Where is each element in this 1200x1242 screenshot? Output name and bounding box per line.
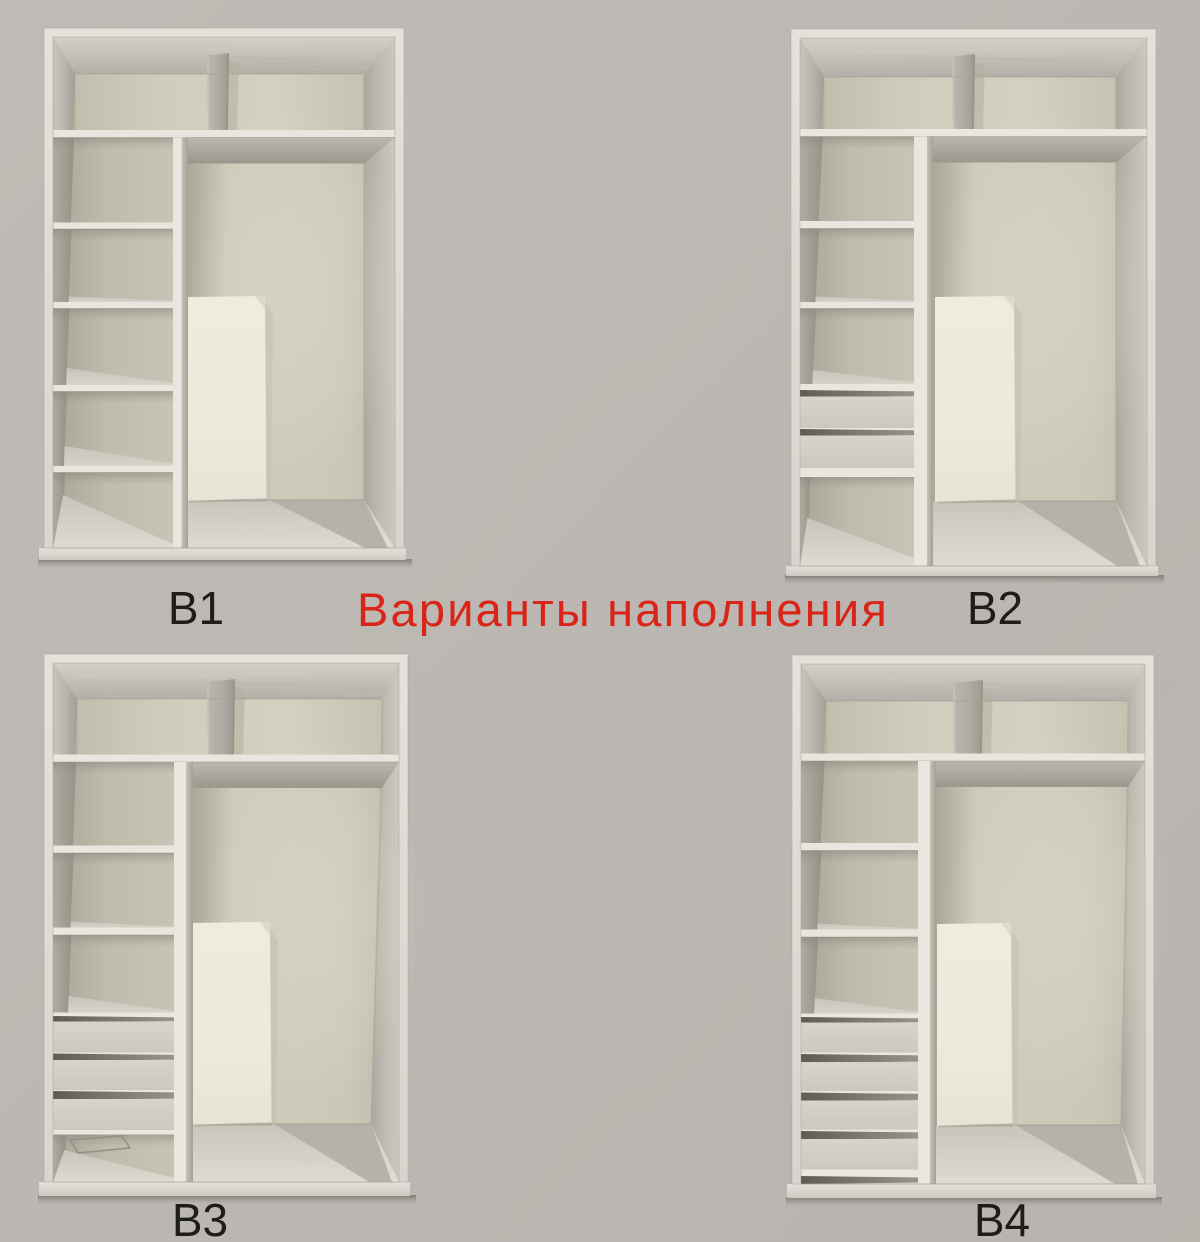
svg-text:B3: B3 bbox=[172, 1194, 228, 1242]
svg-text:B2: B2 bbox=[967, 582, 1023, 634]
svg-text:B4: B4 bbox=[974, 1194, 1030, 1242]
svg-text:Варианты наполнения: Варианты наполнения bbox=[357, 583, 889, 636]
svg-text:B1: B1 bbox=[168, 582, 224, 634]
